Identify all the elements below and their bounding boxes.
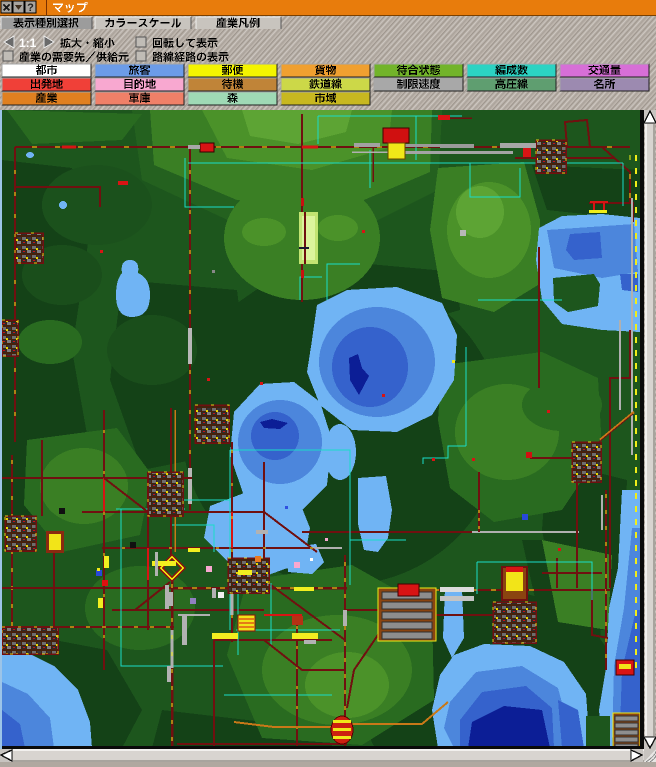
svg-text:?: ? bbox=[27, 2, 34, 14]
svg-text:1:1: 1:1 bbox=[19, 36, 37, 50]
